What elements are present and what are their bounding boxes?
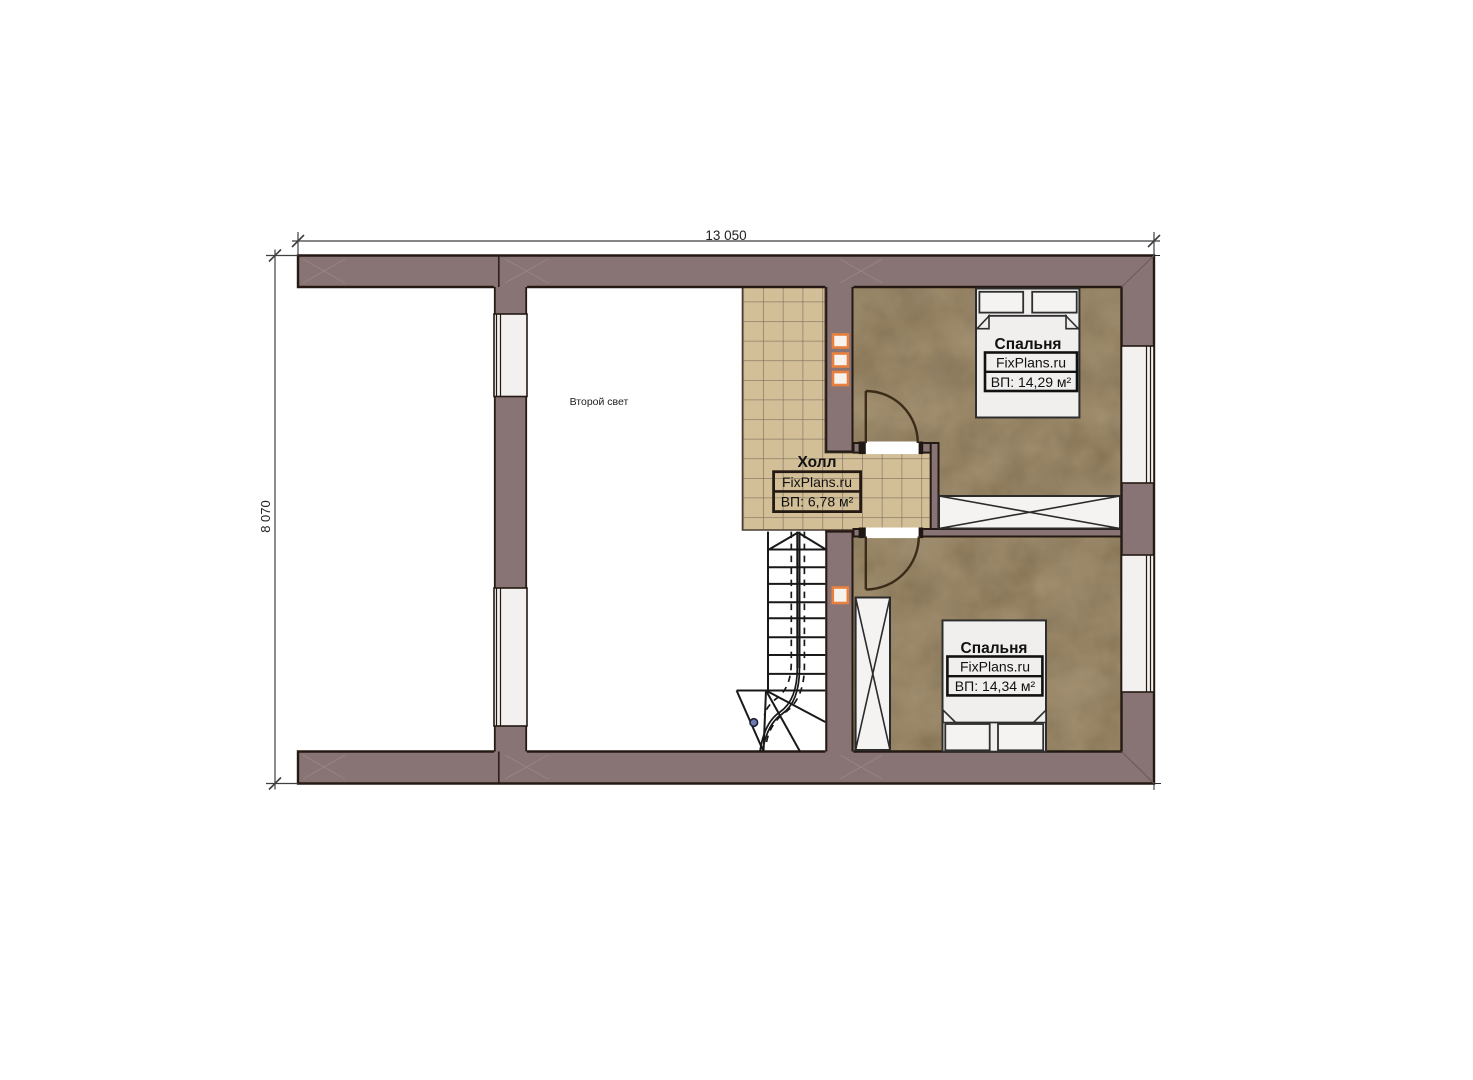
svg-text:8 070: 8 070	[258, 500, 273, 533]
svg-text:FixPlans.ru: FixPlans.ru	[782, 474, 852, 490]
svg-text:13 050: 13 050	[705, 228, 746, 243]
svg-text:Спальня: Спальня	[995, 336, 1062, 353]
svg-text:ВП: 14,34 м²: ВП: 14,34 м²	[955, 678, 1036, 694]
svg-text:Холл: Холл	[798, 454, 837, 471]
svg-text:FixPlans.ru: FixPlans.ru	[960, 659, 1030, 675]
svg-text:ВП: 6,78 м²: ВП: 6,78 м²	[781, 494, 854, 510]
svg-text:ВП: 14,29 м²: ВП: 14,29 м²	[991, 374, 1072, 390]
svg-text:FixPlans.ru: FixPlans.ru	[996, 355, 1066, 371]
svg-text:Второй свет: Второй свет	[570, 396, 629, 408]
svg-text:Спальня: Спальня	[961, 640, 1028, 657]
